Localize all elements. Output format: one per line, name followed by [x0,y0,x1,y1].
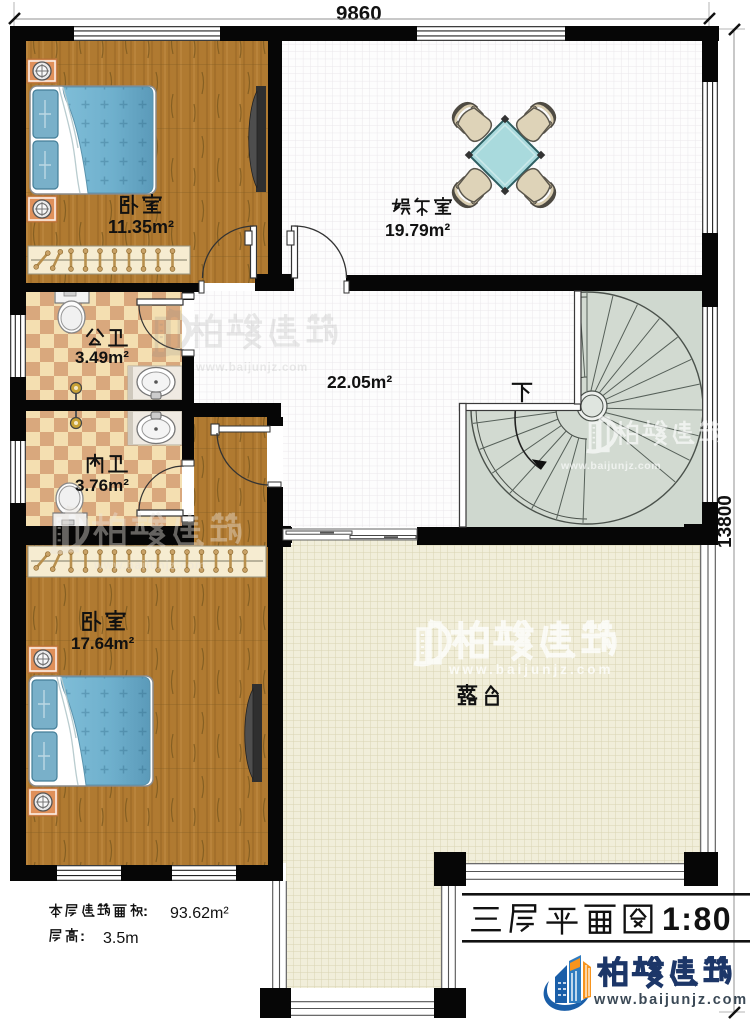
svg-text:19.79m²: 19.79m² [385,220,450,240]
svg-text::: : [143,903,148,920]
svg-text:www.baijunjz.com: www.baijunjz.com [560,460,661,472]
svg-text:11.35m²: 11.35m² [108,217,174,237]
svg-text:93.62m²: 93.62m² [170,905,229,922]
svg-text:3.5m: 3.5m [103,930,139,947]
svg-text:3.49m²: 3.49m² [75,348,129,367]
svg-text:9860: 9860 [336,2,382,25]
svg-text:www.baijunjz.com: www.baijunjz.com [593,992,748,1008]
svg-text:3.76m²: 3.76m² [75,476,129,495]
svg-text:www.baijunjz.com: www.baijunjz.com [93,560,206,572]
svg-text:22.05m²: 22.05m² [327,372,392,392]
svg-text:www.baijunjz.com: www.baijunjz.com [195,362,308,374]
svg-text::: : [80,928,85,945]
svg-text:www.baijunjz.com: www.baijunjz.com [448,662,614,677]
svg-text:13800: 13800 [715,495,736,548]
svg-text:1:80: 1:80 [662,901,732,937]
svg-text:17.64m²: 17.64m² [71,634,135,653]
